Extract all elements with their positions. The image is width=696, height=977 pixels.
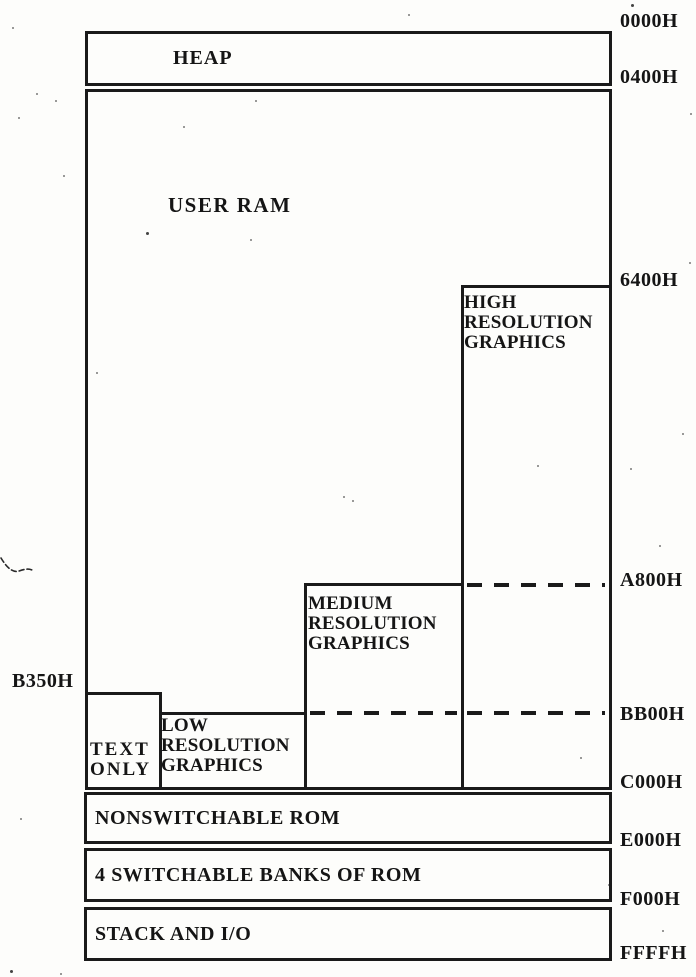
- region-user-ram-label: USER RAM: [168, 193, 291, 218]
- scan-speck: [580, 757, 582, 759]
- scan-speck: [183, 126, 185, 128]
- scan-speck: [682, 433, 684, 435]
- region-heap-label: HEAP: [173, 34, 233, 83]
- scan-speck: [343, 496, 345, 498]
- dashed-boundary-bb00h-left: [310, 711, 457, 715]
- region-stack-and-io: STACK AND I/O: [84, 907, 612, 961]
- dashed-boundary-bb00h-right: [467, 711, 605, 715]
- address-label-0000h: 0000H: [620, 10, 694, 33]
- scan-speck: [60, 973, 62, 975]
- scan-speck: [630, 468, 632, 470]
- scan-speck: [255, 100, 257, 102]
- scan-speck: [537, 465, 539, 467]
- region-low-res-graphics-label: LOW RESOLUTION GRAPHICS: [161, 716, 290, 776]
- scan-speck: [96, 372, 98, 374]
- scan-speck: [352, 500, 354, 502]
- address-label-b350h: B350H: [12, 670, 73, 693]
- address-label-bb00h: BB00H: [620, 703, 694, 726]
- scan-speck: [659, 545, 661, 547]
- region-heap: HEAP: [85, 31, 612, 86]
- memory-map-diagram: HEAP USER RAM HIGH RESOLUTION GRAPHICS M…: [0, 0, 696, 977]
- region-high-res-graphics-label: HIGH RESOLUTION GRAPHICS: [464, 293, 593, 353]
- scan-speck: [690, 113, 692, 115]
- region-text-only-label: TEXT ONLY: [90, 740, 151, 780]
- scan-speck: [55, 100, 57, 102]
- address-label-e000h: E000H: [620, 829, 694, 852]
- scan-speck: [608, 884, 610, 886]
- dashed-boundary-a800h: [467, 583, 605, 587]
- address-label-0400h: 0400H: [620, 66, 694, 89]
- scan-speck: [689, 262, 691, 264]
- scan-speck: [63, 175, 65, 177]
- scan-speck: [36, 93, 38, 95]
- scan-speck: [250, 239, 252, 241]
- scan-speck: [18, 117, 20, 119]
- address-label-f000h: F000H: [620, 888, 694, 911]
- region-stack-and-io-label: STACK AND I/O: [95, 910, 251, 958]
- address-label-ffffh: FFFFH: [620, 942, 694, 965]
- address-label-6400h: 6400H: [620, 269, 694, 292]
- scan-speck: [10, 970, 13, 973]
- scan-speck: [12, 27, 14, 29]
- scan-speck: [662, 930, 664, 932]
- scan-squiggle-mark: [0, 551, 36, 579]
- address-label-c000h: C000H: [620, 771, 694, 794]
- scan-speck: [631, 4, 634, 7]
- region-medium-res-graphics-label: MEDIUM RESOLUTION GRAPHICS: [308, 594, 437, 654]
- region-switchable-rom-banks-label: 4 SWITCHABLE BANKS OF ROM: [95, 851, 422, 899]
- address-label-a800h: A800H: [620, 569, 694, 592]
- scan-speck: [408, 14, 410, 16]
- region-nonswitchable-rom: NONSWITCHABLE ROM: [84, 792, 612, 844]
- region-nonswitchable-rom-label: NONSWITCHABLE ROM: [95, 795, 340, 841]
- scan-speck: [146, 232, 149, 235]
- scan-speck: [20, 818, 22, 820]
- region-switchable-rom-banks: 4 SWITCHABLE BANKS OF ROM: [84, 848, 612, 902]
